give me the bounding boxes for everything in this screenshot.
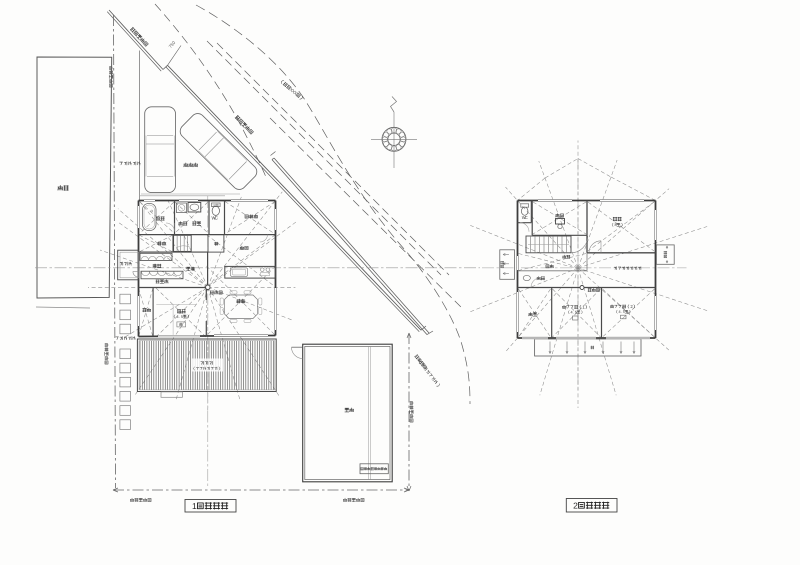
svg-text:F: F [214, 203, 216, 207]
svg-text:C: C [525, 215, 528, 220]
svg-text:5: 5 [623, 310, 625, 314]
svg-text:5: 5 [575, 311, 577, 315]
svg-text:1: 1 [582, 305, 585, 310]
svg-text:2: 2 [630, 304, 633, 309]
svg-text:1: 1 [192, 501, 197, 511]
svg-text:C: C [215, 216, 219, 221]
svg-text:2: 2 [573, 500, 578, 510]
